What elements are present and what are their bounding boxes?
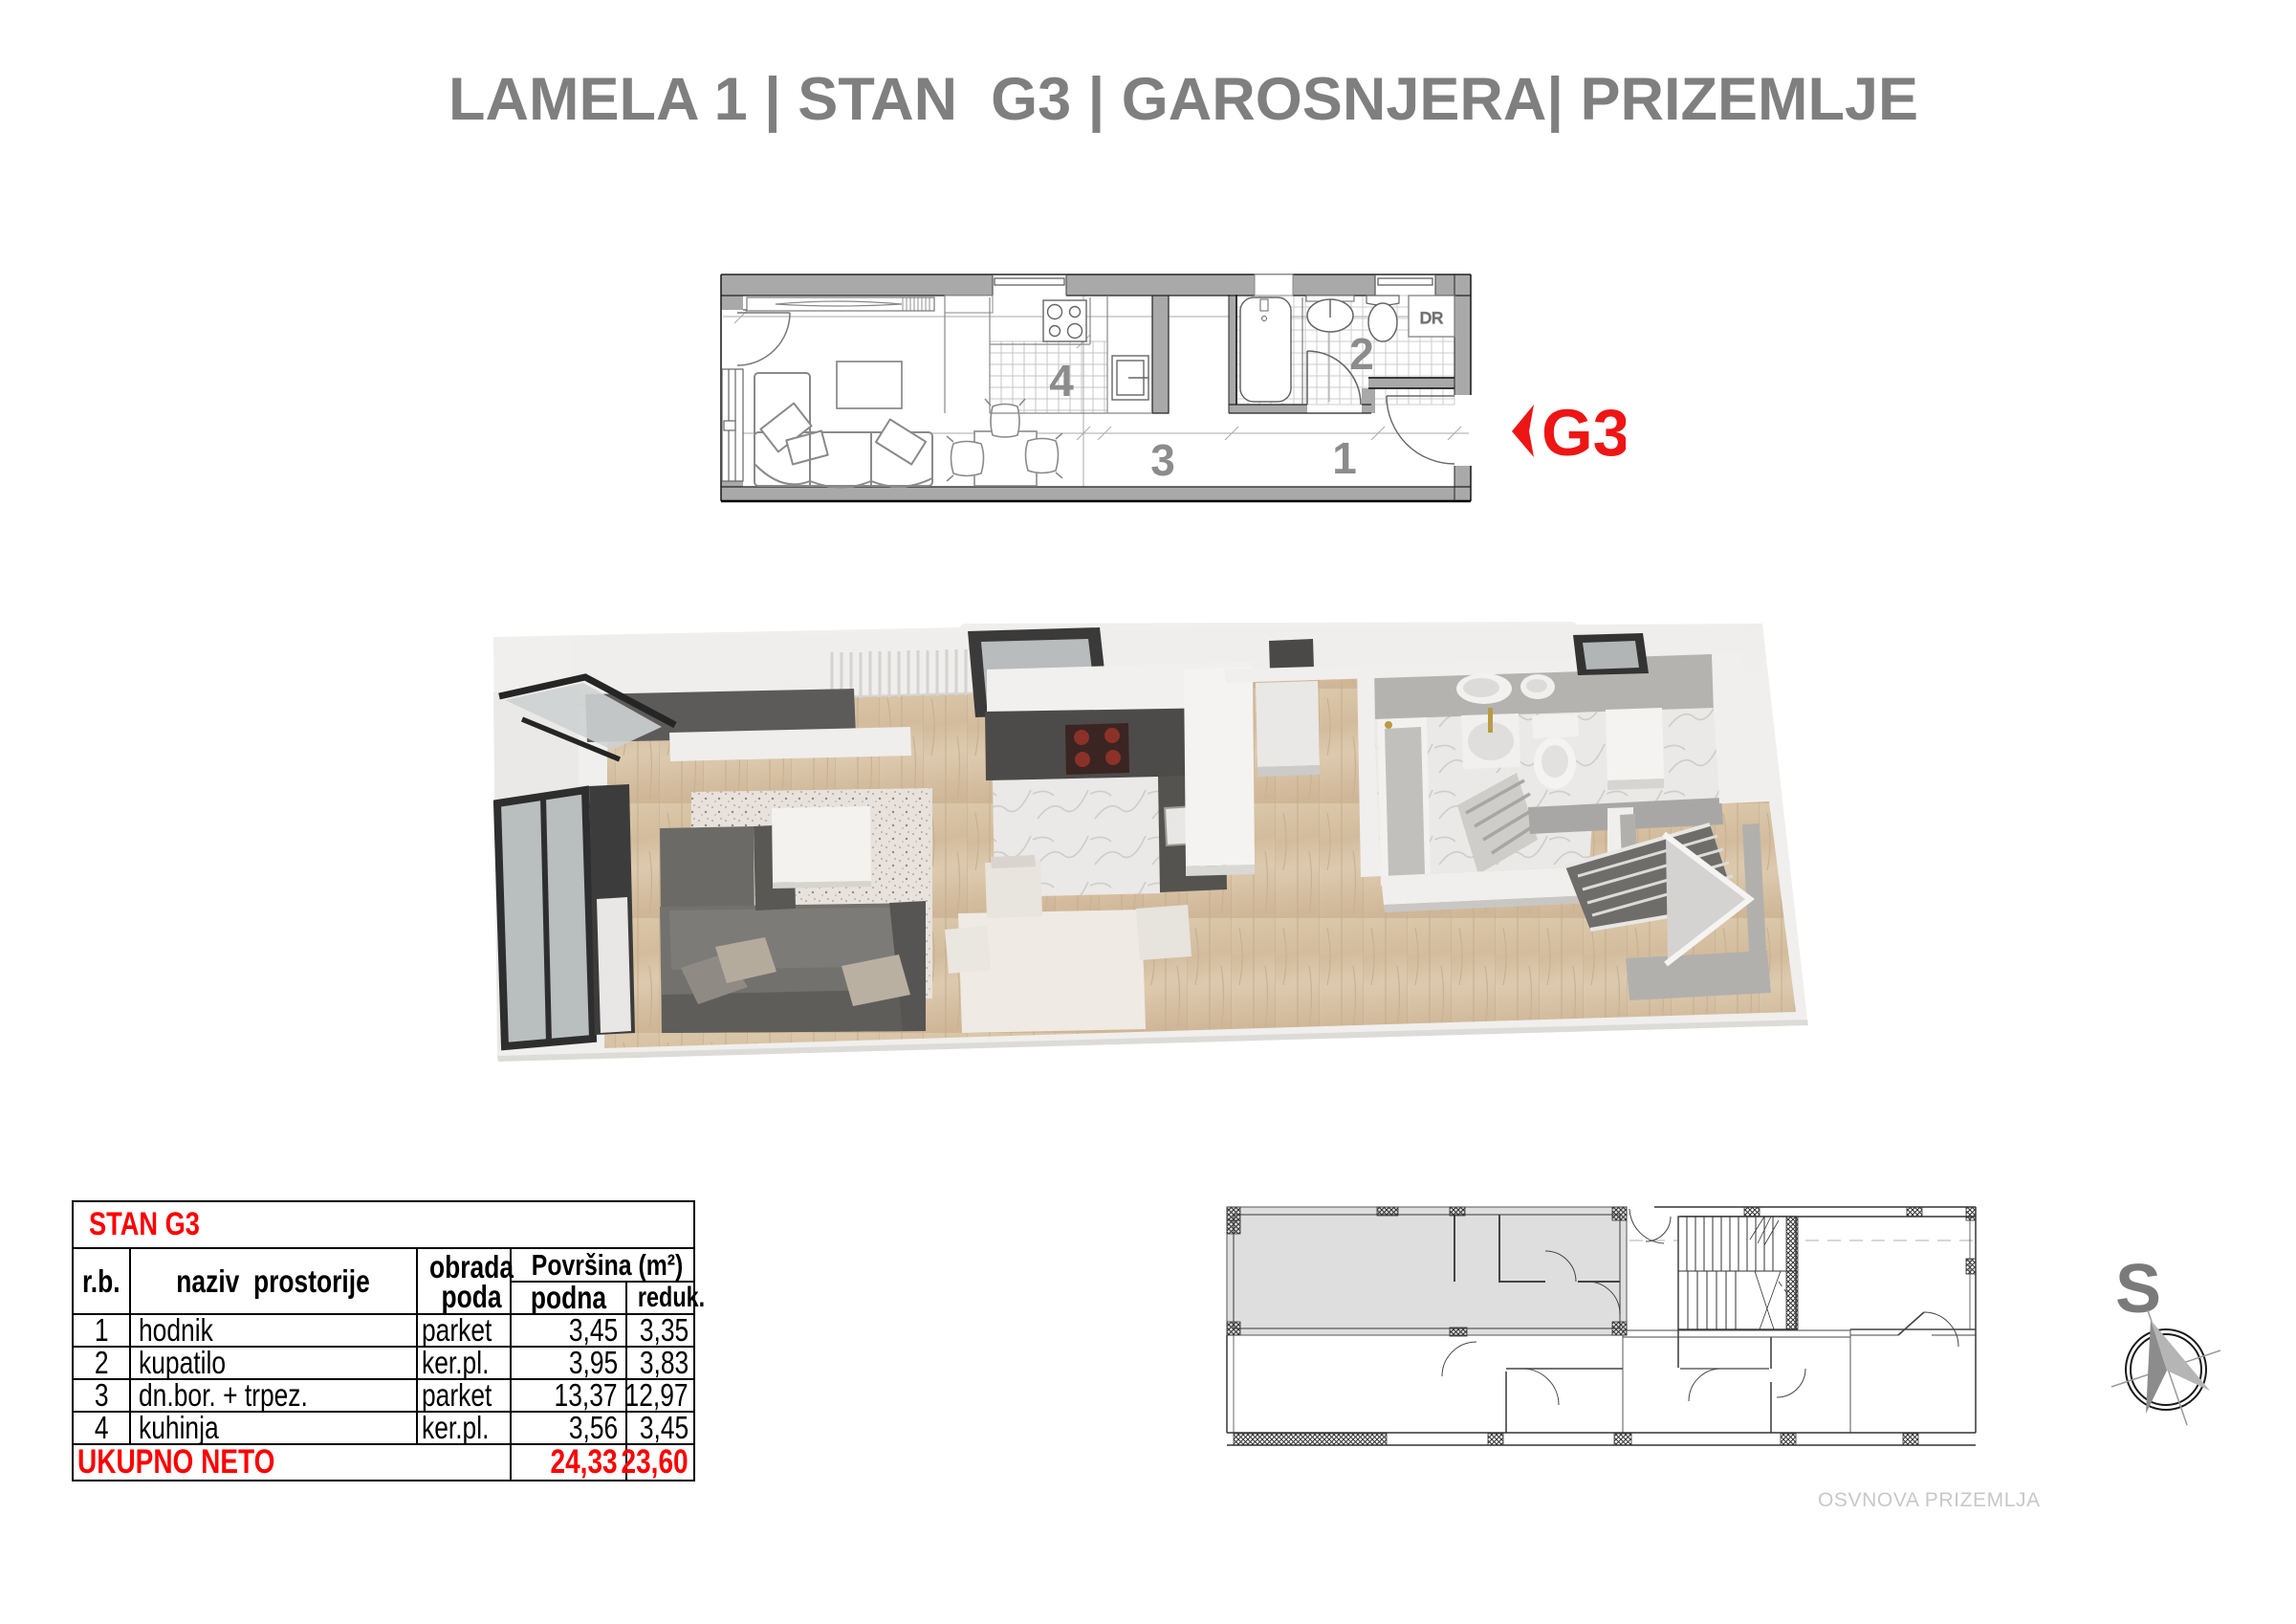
svg-text:G3: G3: [1542, 396, 1626, 469]
svg-text:2: 2: [1349, 329, 1374, 379]
svg-text:3: 3: [1150, 435, 1175, 485]
svg-text:S: S: [2115, 1251, 2161, 1328]
svg-text:1: 1: [1332, 433, 1357, 483]
svg-text:DR: DR: [1420, 309, 1444, 327]
svg-text:4: 4: [1049, 356, 1074, 406]
